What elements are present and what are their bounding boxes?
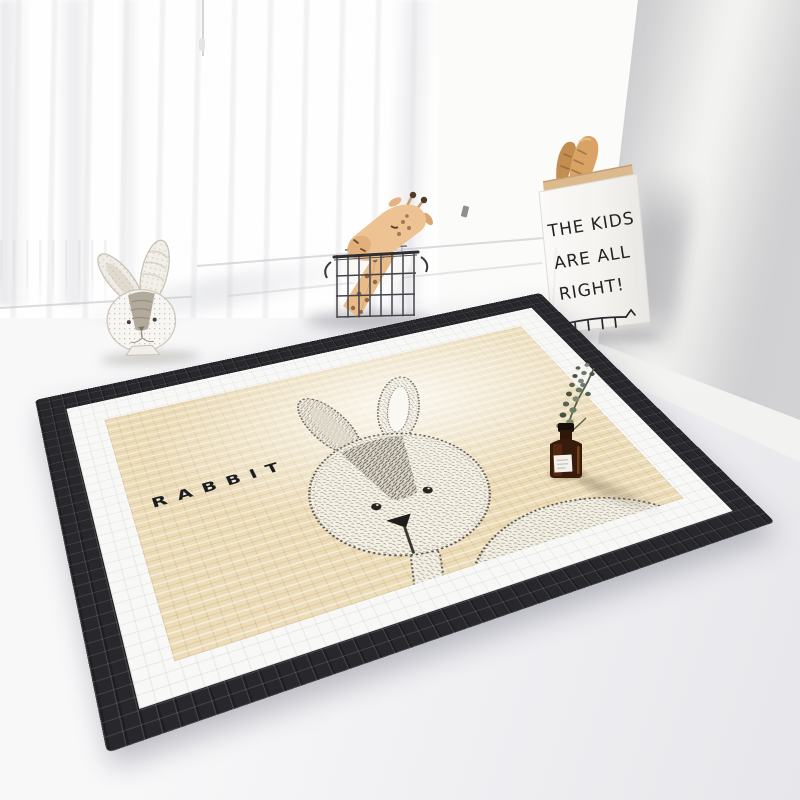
basket-handle-right: [421, 257, 427, 272]
bottle-body: [550, 423, 582, 478]
paper-bag: THE KIDS ARE ALL RIGHT!: [512, 128, 667, 343]
product-photo-stage: THE KIDS ARE ALL RIGHT!: [0, 0, 800, 800]
bottle-with-sprig: [536, 352, 646, 482]
basket-handle-left: [325, 262, 331, 278]
ornament-head: [107, 290, 175, 352]
blind-cord-pull: [199, 38, 205, 51]
bottle-label: [554, 455, 573, 473]
giraffe-head: [343, 192, 435, 263]
ornament-eye: [127, 320, 131, 324]
rabbit-ornament: [93, 237, 193, 358]
ornament-eye: [153, 318, 157, 322]
wire-basket-with-giraffe: [295, 190, 445, 340]
